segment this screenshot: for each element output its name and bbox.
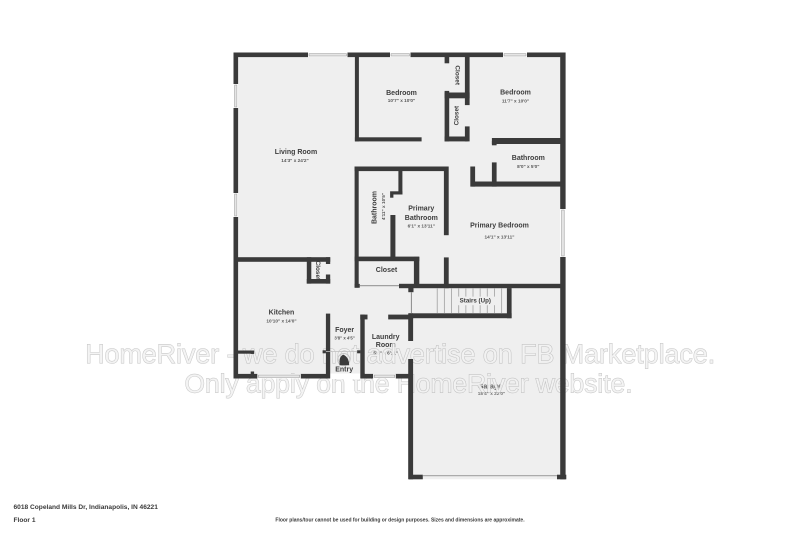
svg-text:8'0" x 5'0": 8'0" x 5'0" <box>517 164 539 169</box>
svg-text:Bedroom: Bedroom <box>500 90 531 97</box>
svg-text:11'7" x 10'0": 11'7" x 10'0" <box>502 98 529 103</box>
svg-text:10'10" x 14'0": 10'10" x 14'0" <box>266 319 296 324</box>
svg-text:Floor 1: Floor 1 <box>14 517 36 524</box>
svg-text:Living Room: Living Room <box>275 149 317 156</box>
svg-text:14'1" x 13'11": 14'1" x 13'11" <box>485 234 515 239</box>
svg-text:HomeRiver - we do not advertis: HomeRiver - we do not advertise on FB Ma… <box>85 339 715 369</box>
svg-text:Closet: Closet <box>314 261 321 281</box>
svg-text:Bathroom: Bathroom <box>512 155 545 162</box>
svg-text:Foyer: Foyer <box>335 327 354 334</box>
svg-text:Kitchen: Kitchen <box>269 310 295 317</box>
svg-text:Closet: Closet <box>453 65 460 85</box>
svg-text:6'1" x 13'11": 6'1" x 13'11" <box>408 224 435 229</box>
svg-text:Stairs (Up): Stairs (Up) <box>460 298 491 305</box>
svg-text:Bathroom: Bathroom <box>371 191 378 224</box>
svg-text:4'11" x 10'5": 4'11" x 10'5" <box>381 193 386 220</box>
svg-text:Primary: Primary <box>408 206 434 213</box>
svg-text:6018 Copeland Mills Dr, Indian: 6018 Copeland Mills Dr, Indianapolis, IN… <box>14 504 159 511</box>
svg-text:Bathroom: Bathroom <box>405 215 438 222</box>
svg-text:14'3" x 24'2": 14'3" x 24'2" <box>281 158 309 163</box>
svg-text:10'7" x 10'0": 10'7" x 10'0" <box>388 98 416 103</box>
svg-text:Bedroom: Bedroom <box>386 90 417 97</box>
svg-text:Closet: Closet <box>453 105 460 125</box>
svg-text:Closet: Closet <box>376 267 398 274</box>
svg-text:Floor plans/tour cannot be use: Floor plans/tour cannot be used for buil… <box>275 518 525 524</box>
svg-text:Primary Bedroom: Primary Bedroom <box>470 223 529 230</box>
